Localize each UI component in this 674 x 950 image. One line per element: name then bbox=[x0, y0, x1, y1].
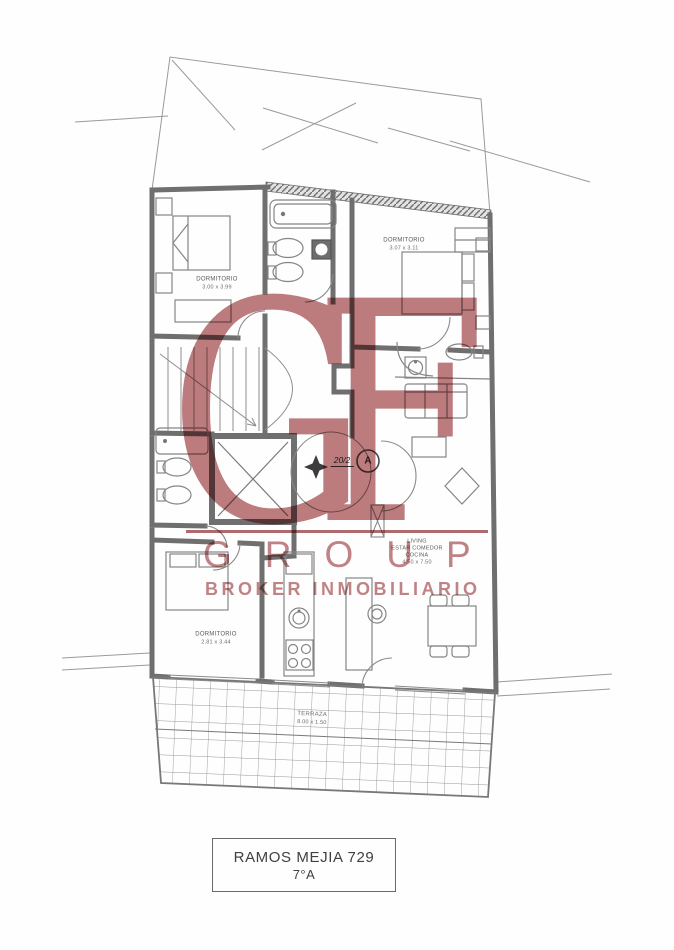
unit-line: 7°A bbox=[293, 867, 316, 882]
floorplan-page: DORMITORIO 3.00 x 3.99 DORMITORIO 3.07 x… bbox=[0, 0, 674, 950]
watermark-rule bbox=[186, 530, 488, 533]
room-label-terrace: TERRAZA 8.00 x 1.50 bbox=[297, 711, 327, 727]
terrace-tiles bbox=[153, 677, 495, 797]
dining-furniture bbox=[428, 595, 476, 657]
address-line: RAMOS MEJIA 729 bbox=[234, 849, 375, 866]
room-name: DORMITORIO bbox=[195, 632, 236, 640]
watermark-monogram: GF bbox=[168, 296, 433, 534]
watermark-tagline: BROKER INMOBILIARIO bbox=[205, 579, 481, 600]
address-title-box: RAMOS MEJIA 729 7°A bbox=[212, 838, 396, 892]
room-label-bedroom3: DORMITORIO 2.81 x 3.44 bbox=[195, 632, 236, 647]
room-dims: 2.81 x 3.44 bbox=[195, 639, 236, 646]
room-dims: 8.00 x 1.50 bbox=[297, 719, 327, 727]
watermark-group-word: GROUP bbox=[203, 534, 504, 576]
